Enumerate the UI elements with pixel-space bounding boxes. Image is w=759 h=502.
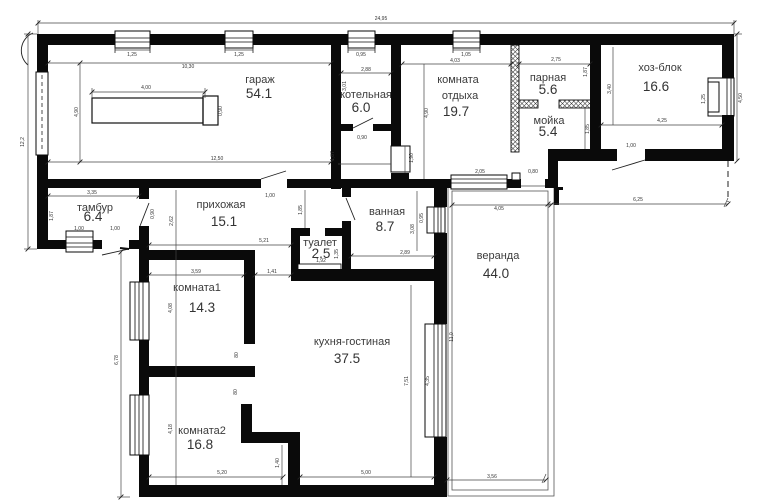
svg-text:комната1: комната1 [173,282,221,294]
svg-text:веранда: веранда [477,250,521,262]
svg-text:3,59: 3,59 [191,269,201,275]
svg-text:2,88: 2,88 [361,67,371,73]
svg-text:1,90: 1,90 [409,153,415,163]
svg-text:2,05: 2,05 [475,169,485,175]
svg-text:ванная: ванная [369,206,405,218]
svg-text:4,90: 4,90 [74,107,80,117]
svg-text:хоз-блок: хоз-блок [638,62,682,74]
svg-text:гараж: гараж [245,74,275,86]
svg-text:5,20: 5,20 [217,470,227,476]
svg-text:0,80: 0,80 [528,169,538,175]
svg-text:5.4: 5.4 [539,124,558,139]
svg-text:54.1: 54.1 [246,86,272,101]
svg-text:3,56: 3,56 [487,474,497,480]
svg-text:80: 80 [233,389,239,395]
svg-text:80: 80 [234,352,240,358]
svg-text:прихожая: прихожая [196,199,245,211]
svg-text:4,18: 4,18 [168,424,174,434]
svg-text:44.0: 44.0 [483,266,509,281]
svg-text:16.8: 16.8 [187,437,213,452]
svg-text:3,08: 3,08 [410,224,416,234]
svg-text:кухня-гостиная: кухня-гостиная [314,336,390,348]
svg-text:комната2: комната2 [178,425,226,437]
svg-text:6.0: 6.0 [352,100,371,115]
svg-text:комната: комната [437,74,479,86]
svg-text:0,95: 0,95 [419,213,425,223]
svg-text:4,25: 4,25 [657,118,667,124]
svg-text:2,75: 2,75 [551,57,561,63]
svg-text:5.6: 5.6 [539,82,558,97]
svg-text:6,25: 6,25 [633,197,643,203]
svg-text:1,05: 1,05 [461,52,471,58]
svg-text:1,35: 1,35 [334,249,340,259]
svg-text:8.7: 8.7 [376,219,395,234]
svg-text:4,90: 4,90 [424,108,430,118]
svg-text:4,50: 4,50 [738,93,744,103]
svg-text:2,62: 2,62 [169,216,175,226]
svg-text:10,30: 10,30 [182,64,195,70]
svg-text:7,51: 7,51 [404,376,410,386]
svg-text:4,35: 4,35 [425,376,431,386]
svg-text:1,85: 1,85 [298,205,304,215]
svg-text:5,21: 5,21 [259,238,269,244]
svg-text:1,25: 1,25 [234,52,244,58]
svg-text:1,85: 1,85 [585,124,591,134]
svg-text:1,00: 1,00 [265,193,275,199]
svg-text:1,00: 1,00 [626,143,636,149]
svg-text:6.4: 6.4 [84,209,103,224]
svg-text:1,00: 1,00 [110,226,120,232]
svg-text:12,2: 12,2 [20,137,26,147]
svg-text:5,00: 5,00 [361,470,371,476]
svg-text:12,50: 12,50 [211,156,224,162]
svg-text:1,25: 1,25 [701,94,707,104]
svg-text:1,92: 1,92 [316,258,326,264]
svg-text:11,0: 11,0 [449,332,455,342]
svg-text:1,87: 1,87 [49,211,55,221]
svg-text:0,90: 0,90 [218,106,224,116]
svg-text:0,95: 0,95 [356,52,366,58]
svg-text:6,78: 6,78 [114,355,120,365]
svg-text:3,40: 3,40 [607,84,613,94]
svg-text:4,05: 4,05 [494,206,504,212]
svg-text:4,03: 4,03 [450,58,460,64]
svg-text:2,89: 2,89 [400,250,410,256]
svg-text:3,35: 3,35 [87,190,97,196]
svg-text:4,00: 4,00 [141,85,151,91]
svg-text:0,90: 0,90 [357,135,367,141]
svg-text:4,08: 4,08 [168,303,174,313]
svg-text:1,40: 1,40 [275,458,281,468]
svg-text:0,90: 0,90 [150,209,156,219]
svg-text:24,95: 24,95 [375,16,388,22]
svg-text:19.7: 19.7 [443,104,469,119]
svg-text:3,01: 3,01 [342,81,348,91]
svg-text:37.5: 37.5 [334,351,360,366]
svg-text:1,00: 1,00 [74,226,84,232]
svg-text:1,25: 1,25 [127,52,137,58]
svg-text:14.3: 14.3 [189,300,215,315]
svg-text:отдыха: отдыха [442,90,479,102]
svg-text:15.1: 15.1 [211,214,237,229]
svg-text:16.6: 16.6 [643,79,669,94]
svg-text:1,87: 1,87 [583,67,589,77]
svg-text:1,41: 1,41 [267,269,277,275]
